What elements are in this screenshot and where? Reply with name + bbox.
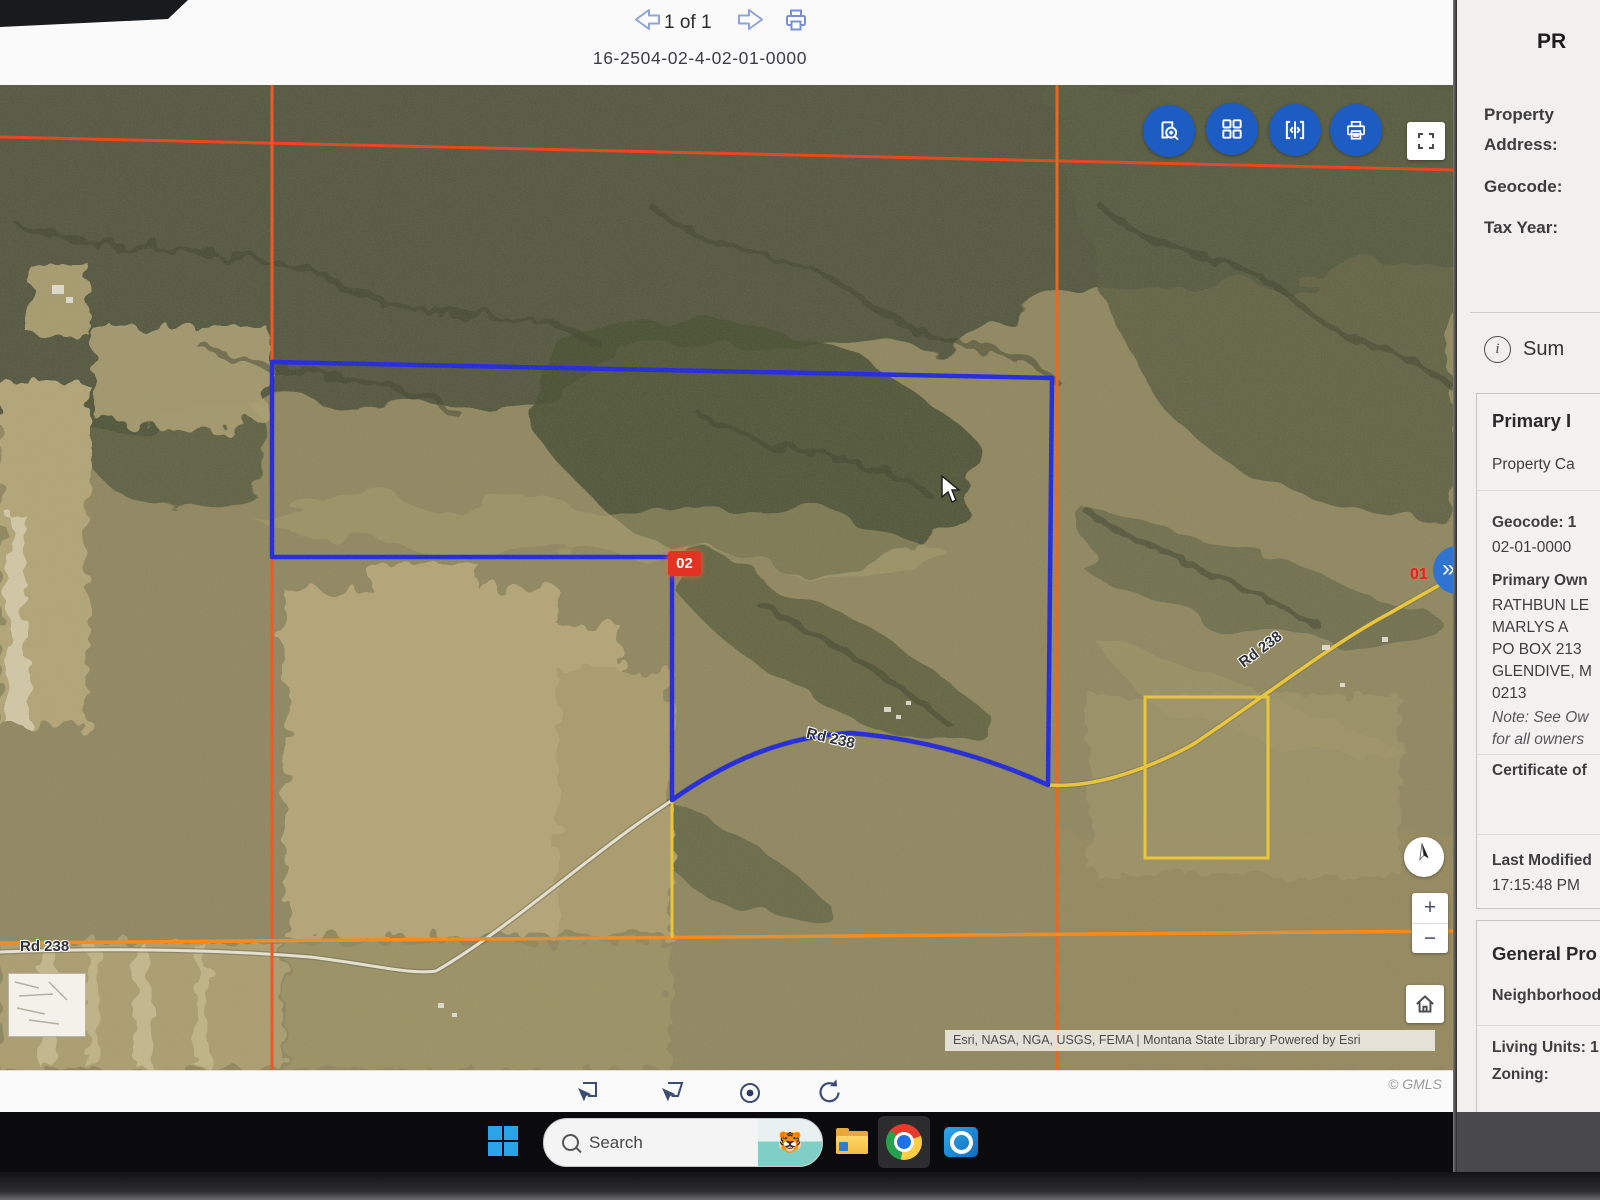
swipe-compare-button[interactable] [1269, 104, 1321, 156]
search-icon [562, 1134, 579, 1151]
property-category-label: Property Ca [1492, 456, 1575, 474]
owner-line: PO BOX 213 [1492, 641, 1582, 659]
owner-note-line2: for all owners [1492, 731, 1584, 749]
copyright-watermark: © GMLS [1388, 1076, 1442, 1092]
screen-edge-artifact [0, 0, 188, 27]
swipe-icon [1282, 117, 1308, 143]
zoom-in-button[interactable]: + [1412, 893, 1448, 924]
last-modified-value: 17:15:48 PM [1492, 877, 1580, 895]
divider [1477, 754, 1600, 755]
neighborhood-label: Neighborhood [1492, 987, 1600, 1005]
fullscreen-button[interactable] [1407, 122, 1445, 160]
search-label: Search [589, 1133, 758, 1153]
file-explorer-button[interactable] [836, 1128, 868, 1154]
search-highlight-image[interactable]: 🐯 [758, 1119, 822, 1166]
map-footer-toolbar: © GMLS [0, 1070, 1457, 1113]
page-indicator: 1 of 1 [664, 12, 712, 34]
chrome-button[interactable] [878, 1116, 930, 1168]
chrome-icon [886, 1124, 922, 1160]
printer-icon [1343, 117, 1369, 143]
mouse-cursor [940, 475, 966, 505]
home-extent-button[interactable] [1406, 985, 1444, 1023]
next-page-icon[interactable] [736, 6, 770, 34]
map-view[interactable]: 02 01 Rd 238 Rd 238 Rd 238 [0, 85, 1457, 1070]
general-property-card: General Pro Neighborhood Living Units: 1… [1476, 920, 1600, 1112]
owner-line: 0213 [1492, 685, 1526, 703]
zoning-label: Zoning: [1492, 1066, 1549, 1084]
outlook-button[interactable] [944, 1127, 978, 1157]
zoom-page-icon [1156, 118, 1182, 144]
property-report-panel: PR Property Address: Geocode: Tax Year: … [1457, 0, 1600, 1112]
property-address-label: Property Address: [1484, 100, 1596, 160]
road-label-west: Rd 238 [20, 938, 69, 955]
divider [1470, 312, 1600, 313]
geocode-value-line2: 02-01-0000 [1492, 539, 1571, 557]
zoom-out-button[interactable]: − [1412, 924, 1448, 954]
zoom-control: + − [1412, 893, 1448, 953]
owner-line: RATHBUN LE [1492, 597, 1589, 615]
card-title: Primary I [1492, 410, 1571, 432]
print-icon[interactable] [782, 6, 810, 34]
owner-line: MARLYS A [1492, 619, 1568, 637]
windows-start-button[interactable] [488, 1126, 518, 1156]
screen: 1 of 1 16-2504-02-4-02-01-0000 [0, 0, 1600, 1200]
outlook-icon [950, 1131, 973, 1154]
geocode-label: Geocode: [1484, 177, 1562, 197]
card-title: General Pro [1492, 943, 1597, 965]
locate-button[interactable] [734, 1077, 766, 1109]
primary-information-card: Primary I Property Ca Geocode: 1 02-01-0… [1476, 393, 1600, 909]
owner-line: GLENDIVE, M [1492, 663, 1592, 681]
divider [1477, 490, 1600, 491]
certificate-label: Certificate of [1492, 762, 1587, 780]
satellite-terrain [0, 85, 1457, 1070]
tax-year-label: Tax Year: [1484, 218, 1558, 238]
info-icon: i [1484, 336, 1511, 363]
windows-taskbar: Search 🐯 [0, 1112, 1457, 1172]
taskbar-search[interactable]: Search 🐯 [543, 1118, 823, 1167]
select-by-rectangle-button[interactable] [572, 1077, 604, 1109]
geocode-value-line1: Geocode: 1 [1492, 514, 1576, 532]
parcel-02-label: 02 [668, 551, 701, 576]
document-topbar: 1 of 1 16-2504-02-4-02-01-0000 [0, 0, 1457, 85]
report-title: PR [1537, 30, 1566, 54]
living-units-label: Living Units: 1 [1492, 1039, 1599, 1057]
grid-icon [1219, 116, 1245, 142]
primary-owner-label: Primary Own [1492, 572, 1588, 590]
home-icon [1412, 991, 1438, 1017]
divider [1477, 834, 1600, 835]
divider [1477, 1025, 1600, 1026]
parcel-id-heading: 16-2504-02-4-02-01-0000 [0, 48, 1400, 69]
basemap-gallery-button[interactable] [1206, 103, 1258, 155]
select-by-polygon-button[interactable] [656, 1077, 688, 1109]
previous-page-icon[interactable] [628, 6, 662, 34]
zoom-to-selection-button[interactable] [1143, 105, 1195, 157]
compass-button[interactable] [1404, 837, 1444, 877]
map-attribution: Esri, NASA, NGA, USGS, FEMA | Montana St… [945, 1030, 1435, 1051]
bezel-corner [1457, 1112, 1600, 1172]
overview-inset-panel [8, 973, 86, 1037]
print-map-button[interactable] [1330, 104, 1382, 156]
summary-heading: Sum [1523, 338, 1564, 361]
fullscreen-icon [1414, 129, 1438, 153]
last-modified-label: Last Modified [1492, 852, 1592, 870]
refresh-button[interactable] [814, 1077, 846, 1109]
parcel-01-label: 01 [1410, 566, 1428, 584]
compass-needle-icon [1404, 837, 1444, 877]
owner-note-line1: Note: See Ow [1492, 709, 1589, 727]
monitor-bezel [0, 1172, 1600, 1200]
